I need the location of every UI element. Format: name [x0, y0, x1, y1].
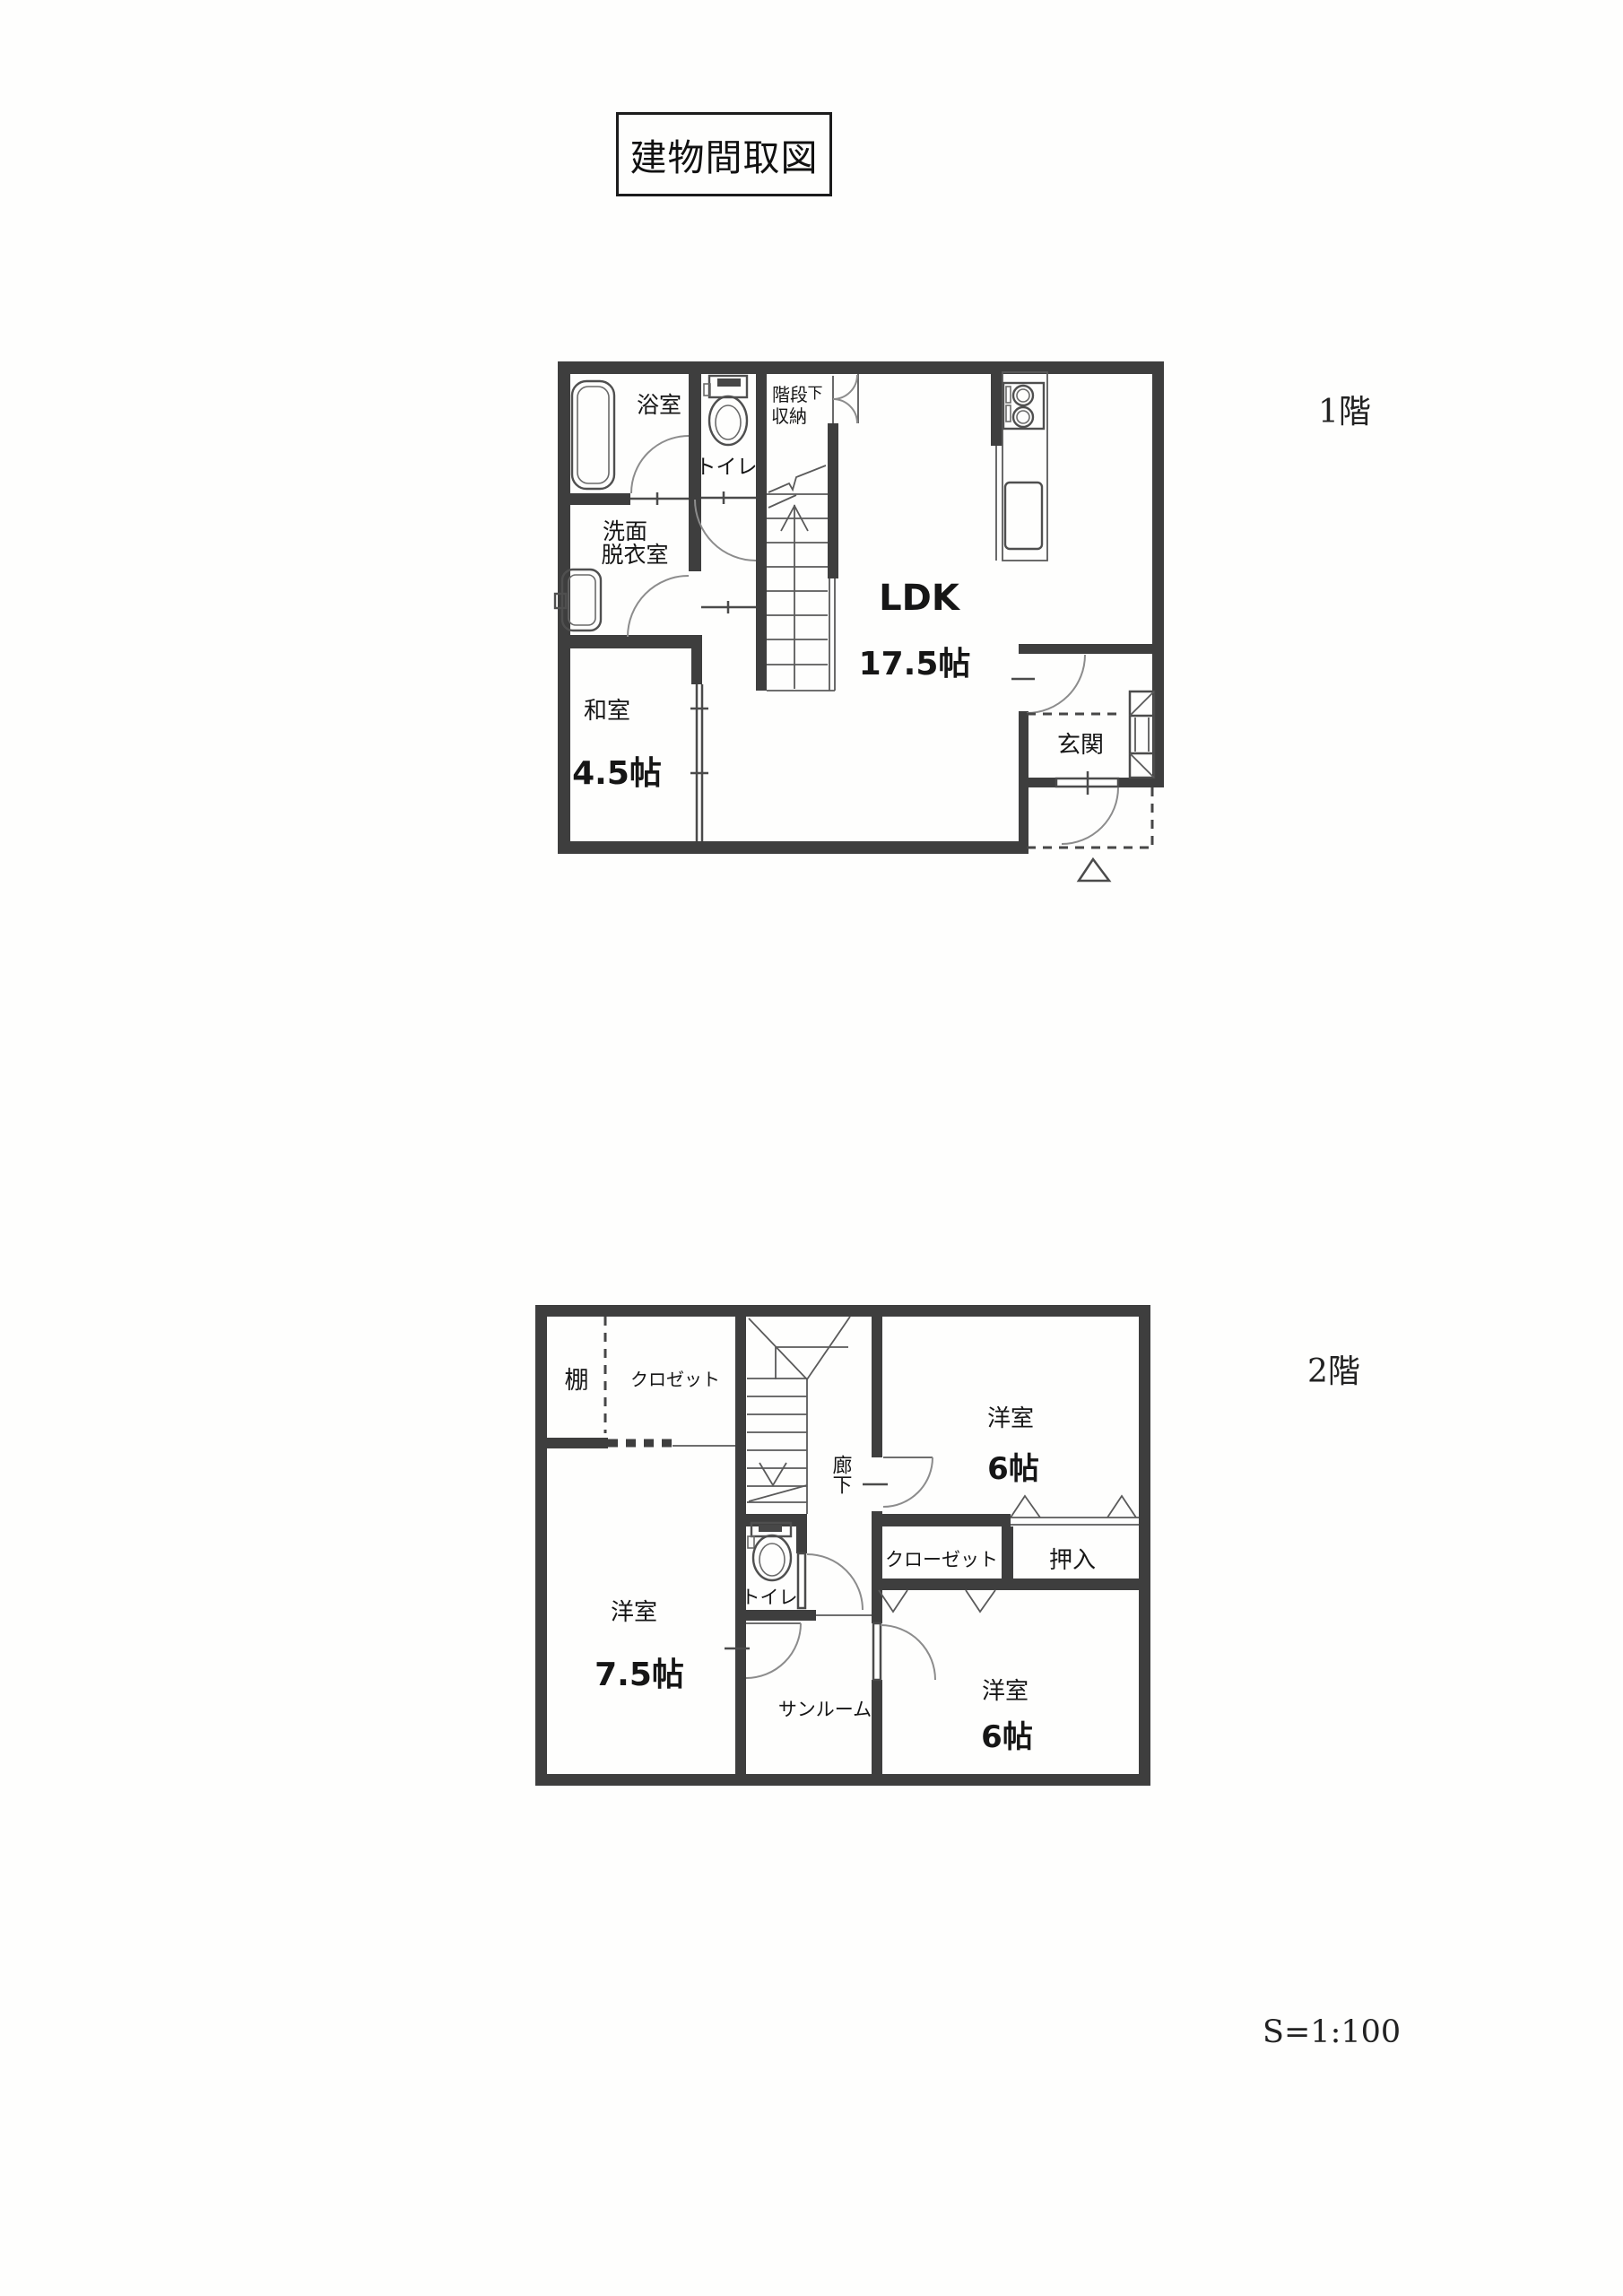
f2-corridor-label: 廊下 [829, 1455, 853, 1494]
f1-ldk-size-label: 17.5帖 [859, 646, 971, 683]
f2-toilet-door-leaf [798, 1553, 805, 1608]
f2-bedroom-w-label: 洋室 [611, 1599, 657, 1626]
f1-wall-genkan-top [1019, 644, 1164, 654]
page-title-box: 建物間取図 [616, 112, 832, 196]
f2-bedroom-ne-door-arc [883, 1457, 933, 1507]
floor2-tag: 2階 [1307, 1345, 1360, 1392]
kitchen-counter-icon [1002, 372, 1047, 561]
f2-closet-long-label: クローゼット [885, 1549, 998, 1570]
shoe-cabinet-icon [1130, 691, 1154, 778]
f2-stairs-down-arrow [759, 1463, 786, 1485]
f1-storage-break-line [768, 465, 826, 492]
f1-wall-toilet-stairs [756, 361, 767, 691]
f2-wall-closet-divider [1002, 1526, 1013, 1581]
f2-oshiire-label: 押入 [1049, 1547, 1096, 1574]
floor1-plan: 浴室 トイレ 階段 下 収納 洗面 脱衣室 LDK 17.5帖 和室 4.5帖 … [538, 350, 1184, 897]
f2-closet-label: クロゼット [630, 1369, 720, 1390]
f2-wall-stairs-bottom [735, 1514, 807, 1526]
toilet-icon-f1 [704, 376, 747, 445]
f2-sunroom-label: サンルーム [778, 1699, 872, 1720]
f1-washitsu-label: 和室 [584, 698, 630, 725]
floor2-fixtures [748, 1523, 791, 1580]
f1-wall-washitsu-top [558, 635, 702, 648]
f1-entrance-label: 玄関 [1057, 732, 1104, 759]
scale-note: S=1:100 [1263, 2014, 1401, 2050]
f1-washroom-label-2: 脱衣室 [601, 542, 668, 568]
f2-wall-bottom [535, 1774, 1150, 1786]
f2-bedroom-se-door-arc [881, 1625, 935, 1680]
f2-wall-left [535, 1305, 547, 1785]
f2-toilet-door-arc [807, 1554, 863, 1610]
f1-wall-bath-toilet [689, 361, 701, 505]
page-title: 建物間取図 [630, 127, 819, 181]
f1-storage-label-3: 収納 [771, 405, 807, 427]
f2-stairs-cut-line [749, 1485, 807, 1501]
f1-bath-label: 浴室 [637, 392, 681, 418]
sink-icon [1005, 483, 1042, 549]
f1-storage-label-1: 階段 [772, 384, 808, 405]
bathtub-icon [572, 381, 614, 489]
f1-wall-bath-bottom [558, 493, 630, 505]
floor1-stairs [767, 465, 835, 691]
f2-wall-top [535, 1305, 1150, 1317]
f2-shelf-label: 棚 [565, 1367, 589, 1395]
f2-bedroom-se-door-leaf [873, 1623, 881, 1680]
f1-toilet-label: トイレ [696, 456, 758, 479]
f2-toilet-label: トイレ [742, 1587, 798, 1608]
f2-wall-corridor-2 [872, 1511, 882, 1623]
f1-wall-washitsu-stub [691, 648, 702, 684]
f2-wall-corridor-3 [872, 1680, 882, 1774]
f2-bedroom-se-label: 洋室 [982, 1678, 1028, 1705]
f1-washroom-door-arc [628, 576, 689, 637]
f2-wall-toilet-right [796, 1526, 807, 1553]
f2-wall-toilet-bottom [735, 1610, 816, 1621]
f2-bifold-mark-1 [1011, 1496, 1040, 1518]
f2-wall-right [1139, 1305, 1150, 1785]
f2-sunroom-door-arc [746, 1623, 801, 1678]
f1-storage-door-arc2 [833, 399, 857, 423]
f1-ldk-label: LDK [879, 578, 961, 619]
f2-bedroom-w-size: 7.5帖 [595, 1657, 684, 1693]
floor2-labels: 棚 クロゼット 廊下 洋室 6帖 クローゼット 押入 トイレ 洋室 7.5帖 サ… [565, 1367, 1097, 1755]
floor1-fixtures [555, 372, 1154, 778]
f2-bedroom-se-size: 6帖 [981, 1719, 1033, 1755]
f1-storage-door-arc1 [833, 375, 857, 399]
f1-entrance-triangle-icon [1079, 859, 1109, 881]
f2-wall-closetrow-top [872, 1514, 1011, 1526]
f2-wall-center-vertical [735, 1317, 746, 1774]
scanned-floorplan-page: 建物間取図 1階 2階 S=1:100 [0, 0, 1623, 2296]
f1-wall-genkan-left [1019, 711, 1028, 852]
f1-wall-kitchen [991, 372, 1002, 446]
f1-front-door-arc [1062, 787, 1118, 844]
f1-wall-stairs-right [828, 423, 838, 578]
f1-wall-top [558, 361, 1164, 374]
f1-wall-bottom [558, 841, 1028, 854]
toilet-icon-f2 [748, 1523, 791, 1580]
f1-wall-genkan-left-stub [1019, 644, 1028, 653]
f2-wall-closet-bottom [544, 1438, 608, 1448]
f1-storage-label-2: 下 [808, 385, 823, 403]
f2-bifold-mark-3 [879, 1590, 907, 1612]
f2-bedroom-ne-label: 洋室 [987, 1405, 1034, 1432]
f2-bifold-mark-2 [1107, 1496, 1136, 1518]
f1-washitsu-size-label: 4.5帖 [572, 755, 662, 792]
f2-bedroom-ne-size: 6帖 [987, 1451, 1039, 1487]
f2-bifold-mark-4 [966, 1590, 995, 1612]
f1-toilet-door-arc [695, 500, 756, 561]
floor2-plan: 棚 クロゼット 廊下 洋室 6帖 クローゼット 押入 トイレ 洋室 7.5帖 サ… [525, 1296, 1166, 1798]
f1-washroom-label-1: 洗面 [603, 518, 647, 544]
floor1-tag: 1階 [1318, 386, 1371, 432]
washbasin-icon [555, 570, 601, 631]
f1-bath-door-arc [631, 436, 689, 493]
f1-wall-genkan-bottom-l [1028, 778, 1056, 787]
f1-wall-washroom-right [689, 505, 701, 571]
f2-wall-corridor-1 [872, 1317, 882, 1457]
f1-wall-genkan-bottom-r [1118, 778, 1164, 787]
f1-genkan-door-arc [1027, 655, 1085, 713]
